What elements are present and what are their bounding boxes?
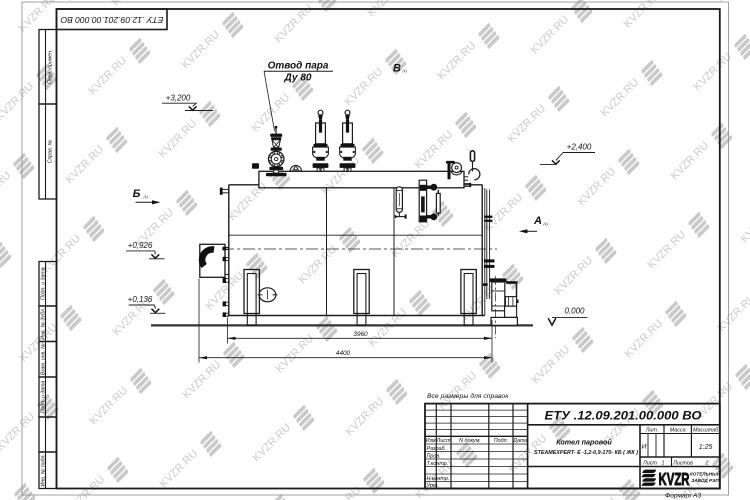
svg-text:Котел паровой: Котел паровой (556, 437, 612, 446)
svg-text:1: 1 (662, 460, 665, 466)
svg-text:+0,926: +0,926 (128, 241, 153, 250)
svg-text:Формат А3: Формат А3 (665, 493, 701, 500)
svg-text:Справ. №: Справ. № (48, 139, 54, 163)
svg-text:2: 2 (705, 460, 709, 466)
svg-text:STEAMEXPERT- Е -1,2-0,9-170- К: STEAMEXPERT- Е -1,2-0,9-170- КБ ( ЖК ) (534, 450, 638, 456)
svg-text:3960: 3960 (353, 331, 368, 338)
svg-text:+0,136: +0,136 (128, 295, 153, 304)
svg-text:ЕТУ .12.09.201.00.000 ВО: ЕТУ .12.09.201.00.000 ВО (545, 408, 702, 422)
svg-text:ЗАВОД РЭП: ЗАВОД РЭП (691, 478, 719, 483)
svg-text:Т.контр.: Т.контр. (427, 461, 449, 467)
svg-text:Листов: Листов (672, 460, 693, 466)
svg-text:4400: 4400 (336, 350, 351, 357)
svg-text:Масштаб: Масштаб (693, 427, 719, 433)
svg-text:Инв. № подл.: Инв. № подл. (40, 454, 46, 486)
svg-text:КОТЕЛЬНЫЙ: КОТЕЛЬНЫЙ (690, 470, 721, 477)
svg-text:Пров.: Пров. (427, 453, 441, 459)
svg-text:ЕТУ .12.09.201.00.000 ВО: ЕТУ .12.09.201.00.000 ВО (60, 15, 163, 25)
svg-text:0,000: 0,000 (564, 306, 585, 315)
svg-text:Ду 80: Ду 80 (284, 73, 312, 84)
svg-text:И: И (642, 443, 647, 450)
svg-text:Инв. № дубл.: Инв. № дубл. (40, 308, 46, 340)
svg-text:N докум.: N докум. (459, 438, 481, 444)
svg-text:Масса: Масса (670, 427, 686, 433)
svg-text:Лит.: Лит. (645, 427, 659, 433)
svg-text:Взам. инв. №: Взам. инв. № (40, 343, 46, 375)
svg-text:(1): (1) (144, 195, 148, 199)
svg-text:KVZR: KVZR (659, 469, 690, 489)
svg-text:1:25: 1:25 (699, 444, 713, 451)
svg-text:Отвод пара: Отвод пара (268, 61, 329, 72)
svg-text:А: А (533, 215, 542, 227)
svg-text:Все размеры для справок: Все размеры для справок (427, 392, 509, 400)
svg-text:Подп. и дата: Подп. и дата (40, 381, 46, 414)
svg-text:(1): (1) (403, 69, 407, 73)
svg-text:Б: Б (133, 188, 141, 200)
svg-text:+3,200: +3,200 (166, 93, 191, 102)
svg-text:Подп.: Подп. (494, 438, 508, 444)
svg-text:+2,400: +2,400 (567, 143, 592, 152)
svg-text:Подп. и дата: Подп. и дата (40, 267, 46, 300)
svg-text:Н.контр.: Н.контр. (427, 476, 450, 482)
svg-text:Лист: Лист (436, 438, 451, 444)
svg-text:Дата: Дата (512, 438, 527, 444)
svg-text:(1): (1) (544, 222, 548, 226)
svg-text:Лист: Лист (642, 460, 657, 466)
svg-text:Разраб.: Разраб. (427, 446, 447, 452)
svg-text:В: В (393, 63, 401, 75)
svg-text:Изм: Изм (426, 438, 436, 444)
svg-text:Перв. примен.: Перв. примен. (48, 50, 54, 84)
svg-text:Утв.: Утв. (426, 483, 439, 489)
